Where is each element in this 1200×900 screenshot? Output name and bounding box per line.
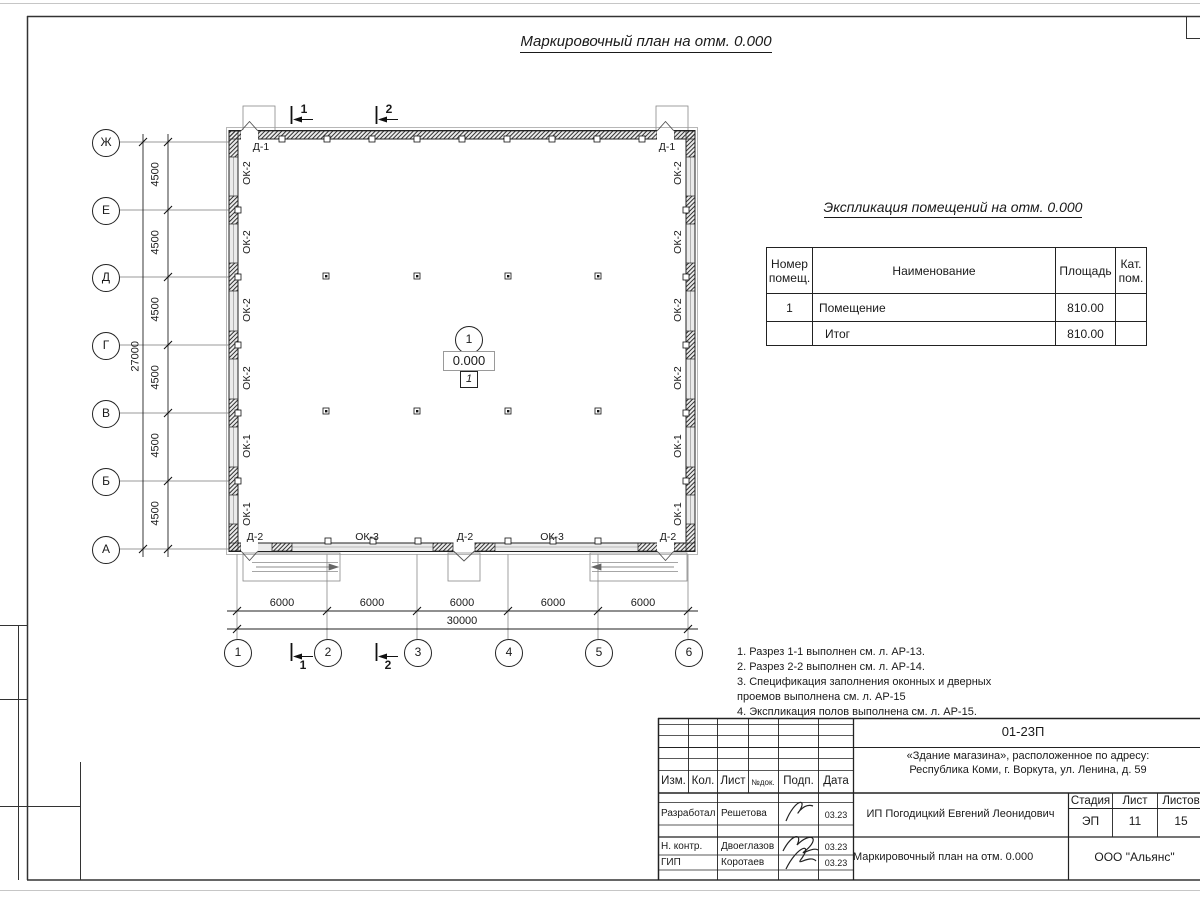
axis-bubble-zh: Ж	[92, 129, 120, 157]
axis-bubble-2: 2	[314, 639, 342, 667]
dim-4500: 4500	[150, 352, 163, 402]
tb-col-kol: Кол.	[689, 775, 717, 788]
window-mark-ok2: ОК-2	[672, 285, 684, 335]
door-mark-d2: Д-2	[445, 531, 485, 543]
tb-listov-value: 15	[1158, 815, 1200, 829]
page-title-text: Маркировочный план на отм. 0.000	[520, 33, 771, 53]
signature	[783, 802, 818, 869]
window-mark-ok1: ОК-1	[672, 421, 684, 471]
page-title: Маркировочный план на отм. 0.000	[446, 33, 846, 53]
axis-bubble-b: Б	[92, 468, 120, 496]
dim-4500: 4500	[150, 420, 163, 470]
tb-list-value: 11	[1113, 815, 1157, 829]
table-row: Итог 810.00	[767, 322, 1147, 346]
dim-6000: 6000	[437, 597, 487, 610]
dim-6000: 6000	[618, 597, 668, 610]
section-label-1: 1	[295, 659, 311, 673]
tb-company: ООО "Альянс"	[1069, 851, 1200, 865]
note-item: 4. Экспликация полов выполнена см. л. АР…	[737, 705, 1037, 720]
tb-col-podp: Подп.	[779, 775, 818, 788]
axis-bubble-v: В	[92, 400, 120, 428]
notes-list: 1. Разрез 1-1 выполнен см. л. АР-13. 2. …	[737, 645, 1037, 720]
cell-room-name: Помещение	[813, 294, 1056, 322]
dim-4500: 4500	[150, 488, 163, 538]
section-label-2: 2	[381, 103, 397, 117]
explication-table: Номер помещ. Наименование Площадь Кат. п…	[766, 247, 1147, 346]
tb-name-gip: Коротаев	[721, 857, 764, 869]
tb-date-ncontrol: 03.23	[819, 842, 853, 852]
dim-27000: 27000	[130, 331, 143, 381]
drawing-sheet: { "sheet": { "plan_title": "Маркировочны…	[0, 0, 1200, 900]
cell-room-number: 1	[767, 294, 813, 322]
cell-total-area: 810.00	[1056, 322, 1116, 346]
door-mark-d1: Д-1	[647, 141, 687, 153]
cell-total-cat	[1116, 322, 1147, 346]
tb-role-gip: ГИП	[661, 857, 681, 869]
tb-date-developer: 03.23	[819, 810, 853, 820]
dim-6000: 6000	[347, 597, 397, 610]
axis-bubble-e: Е	[92, 197, 120, 225]
section-label-1: 1	[296, 103, 312, 117]
window-mark-ok2: ОК-2	[672, 353, 684, 403]
door-mark-d2: Д-2	[235, 531, 275, 543]
floor-type-box: 1	[460, 371, 478, 388]
tb-client: ИП Погодицкий Евгений Леонидович	[853, 808, 1068, 821]
cell-room-cat	[1116, 294, 1147, 322]
tb-list-label: Лист	[1113, 795, 1157, 808]
door-mark-d1: Д-1	[241, 141, 281, 153]
window-mark-ok2: ОК-2	[241, 285, 253, 335]
col-header-cat: Кат. пом.	[1116, 248, 1147, 294]
col-header-area: Площадь	[1056, 248, 1116, 294]
explication-title-text: Экспликация помещений на отм. 0.000	[824, 199, 1083, 218]
cell-room-area: 810.00	[1056, 294, 1116, 322]
axis-bubble-1: 1	[224, 639, 252, 667]
section-label-2: 2	[380, 659, 396, 673]
room-number-bubble: 1	[455, 326, 483, 354]
tb-col-ndoc: №док.	[748, 778, 778, 787]
col-header-number: Номер помещ.	[767, 248, 813, 294]
tb-name-ncontrol: Двоеглазов	[721, 841, 774, 853]
tb-role-developer: Разработал	[661, 808, 715, 820]
axis-bubble-3: 3	[404, 639, 432, 667]
window-mark-ok2: ОК-2	[241, 148, 253, 198]
dim-4500: 4500	[150, 217, 163, 267]
tb-date-gip: 03.23	[819, 858, 853, 868]
cell-total-number	[767, 322, 813, 346]
dim-4500: 4500	[150, 149, 163, 199]
tb-col-izm: Изм.	[659, 775, 688, 788]
tb-stadia-label: Стадия	[1069, 795, 1112, 808]
window-mark-ok2: ОК-2	[241, 353, 253, 403]
window-mark-ok2: ОК-2	[672, 217, 684, 267]
tb-listov-label: Листов	[1158, 795, 1200, 808]
axis-bubble-5: 5	[585, 639, 613, 667]
tb-stadia-value: ЭП	[1069, 815, 1112, 829]
door-mark-d2: Д-2	[648, 531, 688, 543]
window-mark-ok3: ОК-3	[342, 531, 392, 543]
axis-bubble-g: Г	[92, 332, 120, 360]
window-mark-ok2: ОК-2	[241, 217, 253, 267]
axis-bubble-4: 4	[495, 639, 523, 667]
axis-bubble-d: Д	[92, 264, 120, 292]
dim-4500: 4500	[150, 284, 163, 334]
col-header-name: Наименование	[813, 248, 1056, 294]
tb-name-developer: Решетова	[721, 808, 767, 820]
tb-project-line1: «Здание магазина», расположенное по адре…	[858, 750, 1198, 763]
table-row: 1 Помещение 810.00	[767, 294, 1147, 322]
tb-col-data: Дата	[819, 775, 853, 788]
axis-bubble-a: А	[92, 536, 120, 564]
dim-30000: 30000	[437, 615, 487, 628]
note-item: 2. Разрез 2-2 выполнен см. л. АР-14.	[737, 660, 1037, 675]
tb-sheet-name: Маркировочный план на отм. 0.000	[853, 851, 1033, 864]
tb-project-line2: Республика Коми, г. Воркута, ул. Ленина,…	[858, 764, 1198, 777]
axis-bubble-6: 6	[675, 639, 703, 667]
window-mark-ok1: ОК-1	[241, 421, 253, 471]
tb-role-ncontrol: Н. контр.	[661, 841, 702, 853]
tb-col-list: Лист	[718, 775, 748, 788]
dim-6000: 6000	[257, 597, 307, 610]
explication-title: Экспликация помещений на отм. 0.000	[803, 199, 1103, 218]
note-item: 1. Разрез 1-1 выполнен см. л. АР-13.	[737, 645, 1037, 660]
tb-doc-number: 01-23П	[853, 725, 1193, 740]
window-mark-ok3: ОК-3	[527, 531, 577, 543]
dim-6000: 6000	[528, 597, 578, 610]
window-mark-ok2: ОК-2	[672, 148, 684, 198]
elevation-label: 0.000	[443, 351, 495, 371]
cell-total-name: Итог	[813, 322, 1056, 346]
note-item: 3. Спецификация заполнения оконных и две…	[737, 675, 1037, 705]
